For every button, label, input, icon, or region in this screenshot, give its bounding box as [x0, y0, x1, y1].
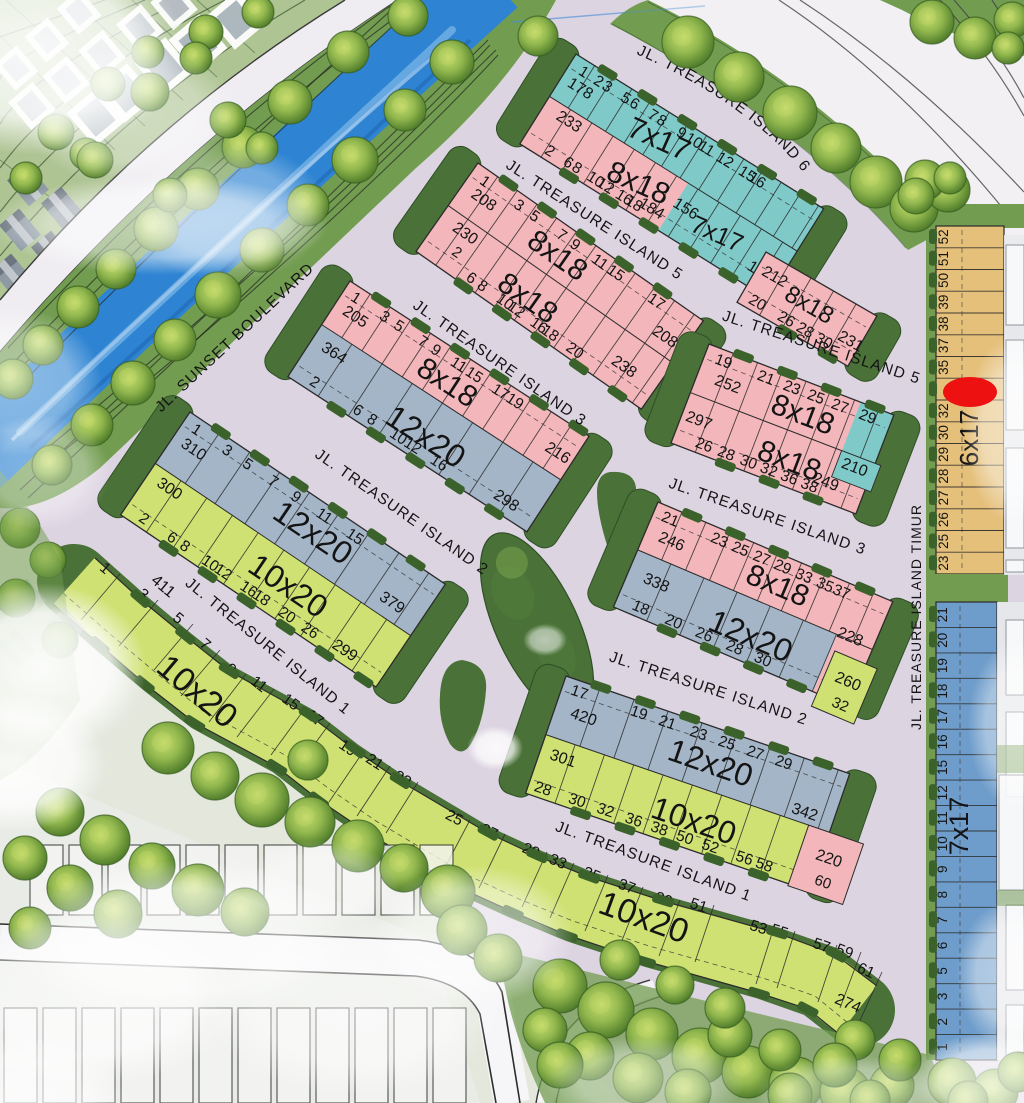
svg-text:39: 39 [936, 295, 951, 310]
svg-text:32: 32 [936, 403, 951, 418]
svg-text:7: 7 [935, 916, 950, 924]
svg-text:20: 20 [935, 633, 950, 648]
svg-text:7x17: 7x17 [944, 797, 974, 856]
svg-text:29: 29 [936, 447, 951, 462]
svg-text:28: 28 [936, 469, 951, 484]
svg-text:15: 15 [935, 760, 950, 775]
svg-text:3: 3 [935, 993, 950, 1001]
svg-text:27: 27 [936, 490, 951, 505]
svg-text:2: 2 [935, 1018, 950, 1026]
svg-text:9: 9 [935, 865, 950, 873]
svg-text:30: 30 [936, 425, 951, 440]
svg-text:52: 52 [936, 229, 951, 244]
svg-text:25: 25 [936, 534, 951, 549]
svg-text:17: 17 [935, 709, 950, 724]
svg-text:23: 23 [936, 556, 951, 571]
svg-text:21: 21 [935, 607, 950, 622]
svg-text:35: 35 [936, 360, 951, 375]
svg-text:JL. TREASURE ISLAND TIMUR: JL. TREASURE ISLAND TIMUR [908, 504, 924, 730]
svg-text:16: 16 [935, 734, 950, 749]
svg-text:19: 19 [935, 658, 950, 673]
svg-text:37: 37 [936, 338, 951, 353]
svg-text:6: 6 [935, 942, 950, 950]
svg-text:26: 26 [936, 512, 951, 527]
svg-text:50: 50 [936, 273, 951, 288]
svg-text:18: 18 [935, 684, 950, 699]
svg-text:38: 38 [936, 316, 951, 331]
svg-text:51: 51 [936, 251, 951, 266]
svg-text:8: 8 [935, 891, 950, 899]
svg-text:5: 5 [935, 967, 950, 975]
